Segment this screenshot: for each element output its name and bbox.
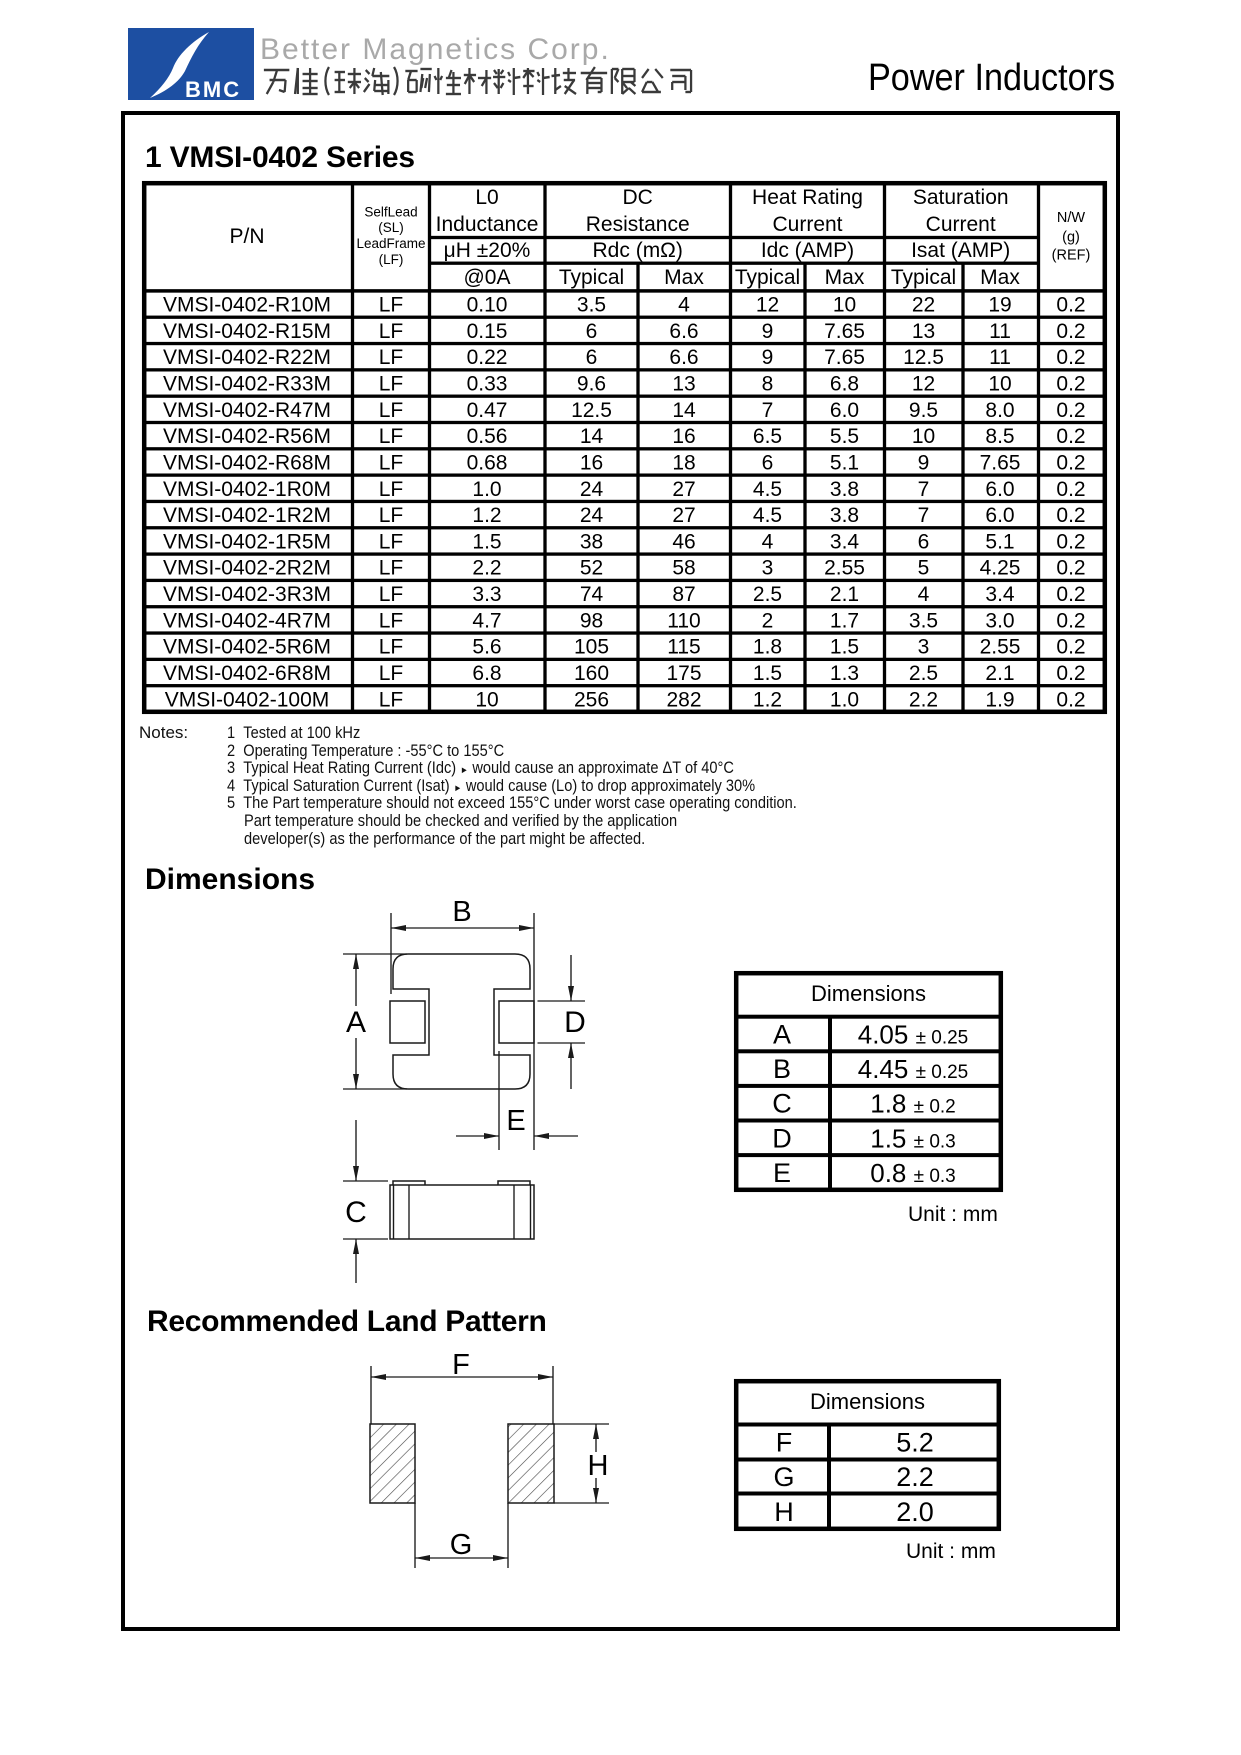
svg-text:G: G bbox=[773, 1462, 794, 1492]
svg-text:F: F bbox=[776, 1428, 793, 1458]
svg-text:Dimensions: Dimensions bbox=[810, 1389, 925, 1414]
svg-text:5.2: 5.2 bbox=[896, 1428, 934, 1458]
svg-text:2.0: 2.0 bbox=[896, 1497, 934, 1527]
svg-text:2.2: 2.2 bbox=[896, 1462, 934, 1492]
svg-text:H: H bbox=[774, 1497, 794, 1527]
